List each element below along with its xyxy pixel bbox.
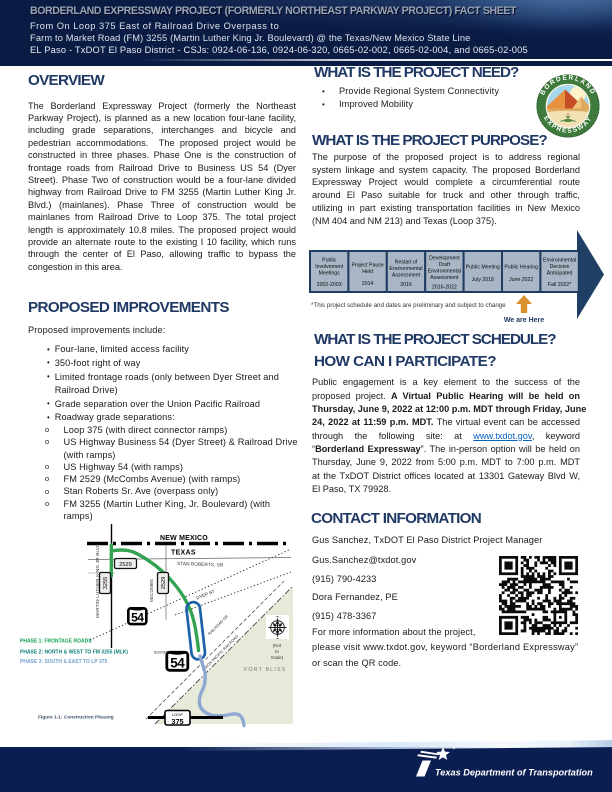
svg-text:Texas Department of Transporta: Texas Department of Transportation	[435, 768, 593, 778]
